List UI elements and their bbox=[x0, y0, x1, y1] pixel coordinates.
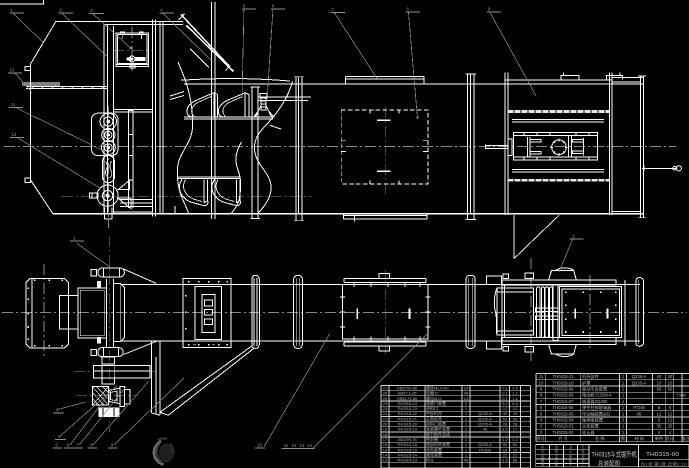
svg-text:计: 计 bbox=[569, 449, 573, 454]
svg-text:35: 35 bbox=[668, 424, 673, 429]
svg-text:头轮装置: 头轮装置 bbox=[582, 423, 599, 430]
svg-text:密封圈: 密封圈 bbox=[426, 436, 438, 442]
svg-text:逆止器: 逆止器 bbox=[582, 429, 595, 436]
svg-text:11: 11 bbox=[539, 374, 544, 379]
svg-text:总计: 总计 bbox=[665, 435, 673, 442]
svg-text:TH0315-04: TH0315-04 bbox=[553, 418, 575, 423]
svg-text:10: 10 bbox=[657, 380, 662, 385]
svg-text:名 称: 名 称 bbox=[595, 435, 605, 442]
svg-text:机壳部件: 机壳部件 bbox=[582, 373, 599, 380]
svg-text:12: 12 bbox=[668, 418, 673, 423]
svg-text:护罩: 护罩 bbox=[582, 379, 590, 386]
svg-text:TH0315-05: TH0315-05 bbox=[553, 411, 575, 416]
svg-text:TH0315-07: TH0315-07 bbox=[553, 399, 575, 404]
svg-text:69: 69 bbox=[513, 458, 518, 463]
svg-text:名: 名 bbox=[555, 454, 558, 459]
svg-text:记: 记 bbox=[541, 449, 545, 454]
svg-text:12: 12 bbox=[292, 443, 297, 448]
svg-text:Q235-A: Q235-A bbox=[632, 380, 647, 385]
svg-text:处: 处 bbox=[541, 454, 545, 459]
svg-text:驱动平台装置: 驱动平台装置 bbox=[582, 386, 607, 393]
svg-text:卸料口装置: 卸料口装置 bbox=[426, 421, 446, 427]
svg-text:TH0315-11: TH0315-11 bbox=[553, 374, 574, 379]
svg-text:45: 45 bbox=[483, 427, 488, 432]
svg-text:螺母M12: 螺母M12 bbox=[426, 395, 443, 401]
svg-text:HT200: HT200 bbox=[633, 405, 646, 410]
svg-text:TH0315-00: TH0315-00 bbox=[646, 452, 679, 458]
svg-text:TH0315-19: TH0315-19 bbox=[397, 427, 418, 432]
svg-text:弹性柱销联轴器: 弹性柱销联轴器 bbox=[582, 404, 612, 411]
svg-text:材 料: 材 料 bbox=[635, 435, 645, 442]
svg-text:10: 10 bbox=[257, 443, 262, 448]
svg-text:13: 13 bbox=[383, 458, 388, 463]
svg-text:TH0315-13: TH0315-13 bbox=[397, 458, 418, 463]
svg-text:张紧螺杆装置: 张紧螺杆装置 bbox=[426, 426, 450, 432]
svg-text:10: 10 bbox=[668, 380, 673, 385]
svg-text:12: 12 bbox=[668, 411, 673, 416]
svg-text:螺栓M12×40: 螺栓M12×40 bbox=[426, 385, 449, 391]
svg-text:45: 45 bbox=[637, 411, 642, 416]
svg-text:HT200: HT200 bbox=[479, 447, 492, 452]
svg-text:总装配图: 总装配图 bbox=[598, 460, 620, 468]
svg-text:进料口: 进料口 bbox=[426, 405, 438, 411]
svg-text:观察门装置: 观察门装置 bbox=[426, 400, 446, 406]
svg-text:10: 10 bbox=[539, 380, 544, 385]
svg-text:备注: 备注 bbox=[681, 435, 689, 442]
svg-text:TH0315-06: TH0315-06 bbox=[553, 405, 575, 410]
svg-text:轴承座装置: 轴承座装置 bbox=[582, 417, 603, 424]
svg-text:Q235-A: Q235-A bbox=[632, 374, 647, 379]
svg-text:减速器ZQ350: 减速器ZQ350 bbox=[582, 398, 608, 405]
svg-text:TH0315斗式提升机: TH0315斗式提升机 bbox=[592, 450, 638, 459]
svg-text:导向装置: 导向装置 bbox=[426, 446, 442, 452]
svg-text:牵引构件总成: 牵引构件总成 bbox=[426, 431, 450, 437]
svg-text:工: 工 bbox=[569, 463, 573, 467]
svg-text:40: 40 bbox=[657, 374, 662, 379]
svg-text:TH0315-10: TH0315-10 bbox=[553, 380, 575, 385]
svg-text:垫圈12: 垫圈12 bbox=[426, 390, 439, 396]
svg-text:65: 65 bbox=[668, 387, 673, 392]
svg-text:料斗: 料斗 bbox=[426, 457, 434, 463]
svg-text:代 号: 代 号 bbox=[558, 435, 568, 442]
svg-text:40: 40 bbox=[668, 374, 673, 379]
svg-text:标: 标 bbox=[541, 445, 545, 450]
svg-text:12: 12 bbox=[12, 132, 17, 137]
svg-text:35: 35 bbox=[657, 424, 662, 429]
svg-text:13: 13 bbox=[300, 443, 305, 448]
svg-text:电动机Y132M-4: 电动机Y132M-4 bbox=[582, 392, 612, 399]
svg-text:设: 设 bbox=[569, 445, 573, 450]
svg-text:TH0315-02: TH0315-02 bbox=[553, 430, 575, 435]
svg-text:46: 46 bbox=[464, 458, 469, 463]
svg-text:TH0315-03: TH0315-03 bbox=[553, 424, 575, 429]
svg-text:11: 11 bbox=[11, 102, 16, 107]
svg-text:序号: 序号 bbox=[537, 435, 545, 442]
svg-text:更: 更 bbox=[541, 462, 545, 467]
svg-text:传动轴装置φ32: 传动轴装置φ32 bbox=[582, 410, 611, 417]
svg-text:11: 11 bbox=[284, 443, 289, 448]
svg-text:尾部机壳装置: 尾部机壳装置 bbox=[426, 441, 450, 447]
svg-text:7.5kW: 7.5kW bbox=[676, 394, 685, 398]
svg-text:14: 14 bbox=[307, 443, 312, 448]
svg-text:8.5: 8.5 bbox=[502, 427, 508, 432]
svg-text:1.5: 1.5 bbox=[502, 458, 508, 463]
svg-text:中部机壳: 中部机壳 bbox=[426, 410, 442, 416]
svg-text:TH0315-09: TH0315-09 bbox=[553, 387, 575, 392]
svg-text:尾轮装置: 尾轮装置 bbox=[426, 451, 442, 457]
svg-text:TH0315-08: TH0315-08 bbox=[553, 393, 575, 398]
svg-text:65: 65 bbox=[657, 387, 662, 392]
svg-text:12: 12 bbox=[657, 411, 662, 416]
svg-text:头部机壳: 头部机壳 bbox=[426, 415, 442, 421]
svg-text:17: 17 bbox=[513, 427, 518, 432]
svg-text:单件: 单件 bbox=[655, 435, 663, 442]
svg-text:审: 审 bbox=[569, 454, 573, 459]
svg-text:10: 10 bbox=[10, 68, 15, 73]
svg-text:共1张 第1张 比例1:10: 共1张 第1张 比例1:10 bbox=[641, 461, 687, 466]
